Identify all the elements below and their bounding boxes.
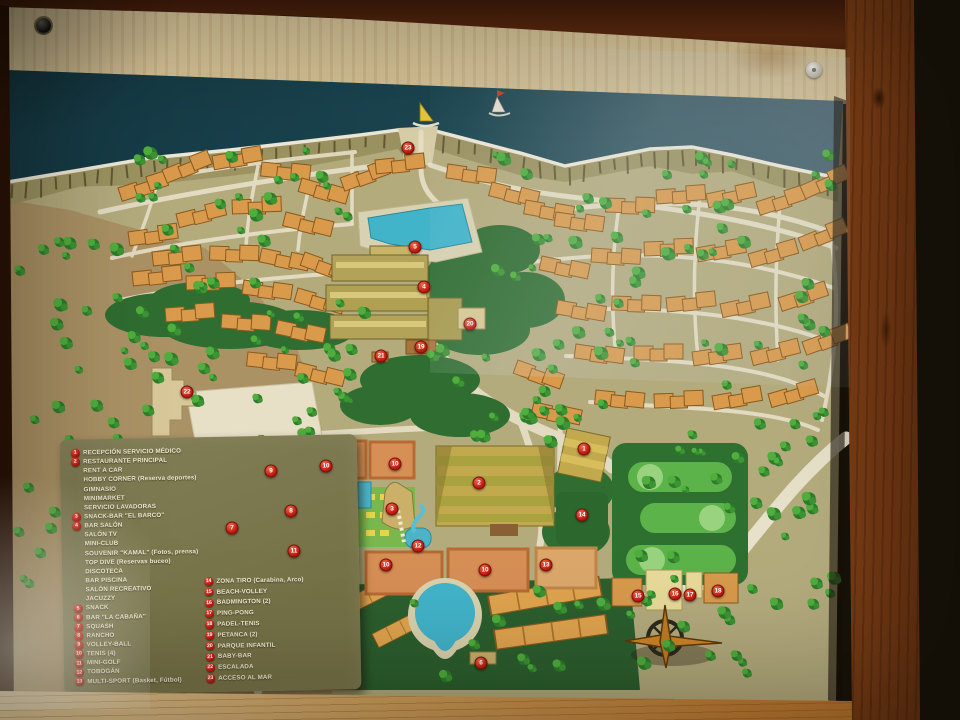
legend-column-1: 1RECEPCIÓN SERVICIO MÉDICO2RESTAURANTE P…	[71, 446, 216, 686]
legend-item-label: GIMNASIO	[84, 485, 117, 493]
legend-item-label: PETANCA (2)	[217, 631, 257, 639]
legend-item-label: VOLLEY-BALL	[87, 641, 132, 649]
map-marker-15: 15	[632, 590, 645, 603]
bolt-icon	[36, 18, 51, 33]
legend-item-label: ZONA TIRO (Carabina, Arco)	[216, 576, 303, 585]
map-marker-1: 1	[578, 443, 591, 456]
legend-number-badge: 9	[74, 641, 83, 650]
map-marker-5: 5	[409, 241, 422, 254]
map-marker-10: 10	[479, 564, 492, 577]
legend-number-badge: 3	[72, 513, 81, 522]
legend-number-badge: 2	[71, 458, 80, 467]
map-marker-7: 7	[226, 522, 239, 535]
legend-item-label: PADEL-TENIS	[217, 620, 260, 628]
map-marker-10: 10	[389, 458, 402, 471]
map-marker-12: 12	[412, 540, 425, 553]
map-marker-8: 8	[285, 505, 298, 518]
legend-number-spacer	[73, 540, 82, 549]
restaurant-building	[436, 446, 554, 536]
legend-item-label: SQUASH	[86, 623, 114, 631]
legend-number-spacer	[71, 476, 80, 485]
legend-item-label: BEACH-VOLLEY	[217, 588, 268, 596]
map-marker-13: 13	[540, 559, 553, 572]
legend-item-label: SNACK	[86, 604, 109, 611]
legend-number-badge: 8	[74, 632, 83, 641]
legend-column-2: 14ZONA TIRO (Carabina, Arco)15BEACH-VOLL…	[204, 573, 358, 684]
map-marker-19: 19	[415, 341, 428, 354]
legend-item-label: RANCHO	[86, 632, 114, 640]
legend-item-label: DISCOTECA	[85, 568, 123, 576]
legend-item-label: PARQUE INFANTIL	[218, 641, 276, 649]
legend-item-label: MULTI-SPORT (Basket, Fútbol)	[87, 676, 182, 685]
map-marker-14: 14	[576, 509, 589, 522]
legend-item-label: JACUZZY	[86, 595, 116, 603]
legend-number-spacer	[72, 494, 81, 503]
map-marker-22: 22	[181, 386, 194, 399]
map-marker-17: 17	[684, 589, 697, 602]
legend-number-badge: 22	[206, 663, 215, 672]
legend-number-spacer	[73, 586, 82, 595]
legend-item-label: TOP DIVE (Reservas buceo)	[85, 558, 171, 567]
legend-item-label: RENT A CAR	[83, 467, 122, 475]
legend-number-badge: 19	[205, 631, 214, 640]
legend-number-badge: 7	[74, 622, 83, 631]
legend-number-badge: 21	[206, 653, 215, 662]
legend-item-label: MINI-CLUB	[85, 540, 119, 548]
legend-item-label: PING-PONG	[217, 609, 254, 617]
legend-number-spacer	[73, 558, 82, 567]
resort-map-photo: 1RECEPCIÓN SERVICIO MÉDICO2RESTAURANTE P…	[0, 0, 960, 720]
legend-item-label: BAR SALÓN	[84, 522, 122, 530]
legend-item-label: TENIS (4)	[87, 650, 116, 658]
map-marker-23: 23	[402, 142, 415, 155]
legend-item-label: SALÓN TV	[84, 531, 117, 539]
legend-number-badge: 12	[75, 668, 84, 677]
legend-panel: 1RECEPCIÓN SERVICIO MÉDICO2RESTAURANTE P…	[60, 434, 362, 695]
legend-number-spacer	[73, 568, 82, 577]
legend-number-spacer	[74, 595, 83, 604]
legend-item-label: ACCESO AL MAR	[218, 674, 272, 682]
legend-number-badge: 11	[75, 659, 84, 668]
legend-number-badge: 20	[205, 642, 214, 651]
golf-area	[612, 443, 748, 585]
map-marker-10: 10	[320, 460, 333, 473]
legend-item: 23ACCESO AL MAR	[206, 670, 358, 684]
legend-number-spacer	[71, 485, 80, 494]
legend-item-label: MINIMARKET	[84, 494, 125, 502]
legend-number-spacer	[73, 549, 82, 558]
map-marker-18: 18	[712, 585, 725, 598]
legend-number-spacer	[72, 531, 81, 540]
legend-number-badge: 16	[205, 599, 214, 608]
legend-number-badge: 17	[205, 609, 214, 618]
legend-number-badge: 1	[71, 449, 80, 458]
map-marker-9: 9	[265, 465, 278, 478]
map-marker-3: 3	[386, 503, 399, 516]
legend-number-badge: 14	[204, 577, 213, 586]
legend-number-badge: 10	[75, 650, 84, 659]
legend-item-label: BAR "LA CABAÑA"	[86, 613, 146, 621]
legend-number-spacer	[71, 467, 80, 476]
legend-item-label: ESCALADA	[218, 663, 254, 671]
bolt-icon	[806, 62, 822, 78]
map-marker-6: 6	[475, 657, 488, 670]
legend-item: 13MULTI-SPORT (Basket, Fútbol)	[75, 674, 215, 686]
legend-number-badge: 4	[72, 522, 81, 531]
legend-number-spacer	[73, 577, 82, 586]
legend-item-label: SNACK-BAR "EL BARCO"	[84, 512, 164, 521]
map-marker-10: 10	[380, 559, 393, 572]
legend-number-badge: 18	[205, 620, 214, 629]
map-marker-2: 2	[473, 477, 486, 490]
map-marker-16: 16	[669, 588, 682, 601]
legend-item-label: SERVICIO LAVADORAS	[84, 503, 156, 511]
legend-number-badge: 13	[75, 677, 84, 686]
map-marker-20: 20	[464, 318, 477, 331]
legend-item-label: BAR PISCINA	[85, 577, 127, 585]
map-marker-4: 4	[418, 281, 431, 294]
legend-number-spacer	[72, 504, 81, 513]
legend-item-label: BADMINGTON (2)	[217, 598, 271, 606]
map-marker-11: 11	[288, 545, 301, 558]
legend-item-label: BABY-BAR	[218, 653, 252, 661]
legend-item-label: MINI-GOLF	[87, 659, 121, 667]
legend-item-label: SALÓN RECREATIVO	[85, 585, 151, 593]
legend-number-badge: 15	[204, 588, 213, 597]
map-marker-21: 21	[375, 350, 388, 363]
legend-number-badge: 23	[206, 674, 215, 683]
legend-item-label: TOBOGÁN	[87, 668, 120, 676]
legend-number-badge: 5	[74, 604, 83, 613]
legend-number-badge: 6	[74, 613, 83, 622]
